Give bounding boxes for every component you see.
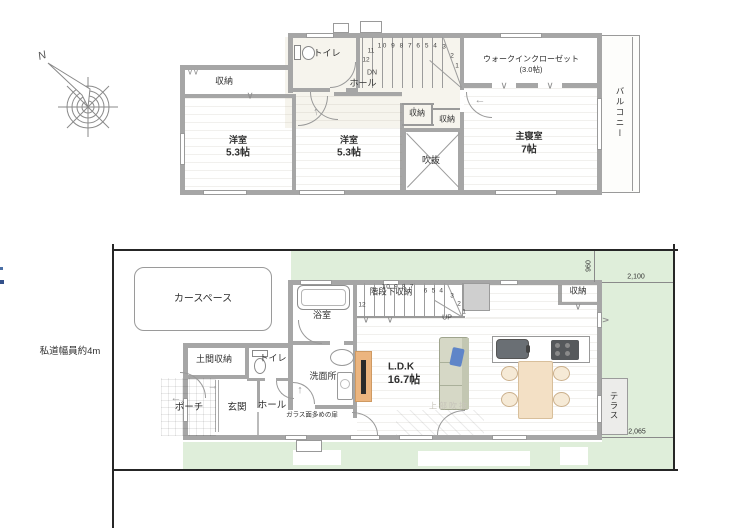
lot-boundary-right	[673, 244, 675, 471]
tv	[361, 360, 366, 394]
label-bedroom1: 洋室	[229, 136, 247, 146]
label-under-stair-storage: 階段下収納	[370, 287, 413, 296]
lot-boundary-bottom	[112, 469, 678, 471]
stairs-1f-3: 3	[450, 293, 454, 300]
lot-boundary-left	[112, 244, 114, 528]
label-ldk: L.D.K	[388, 362, 414, 373]
label-2f-hall: ホール	[349, 79, 376, 89]
label-bedroom1-size: 5.3帖	[226, 148, 250, 159]
stairs-1f-up: UP	[442, 315, 452, 322]
balcony-label: バルコニー	[614, 87, 626, 140]
label-void: 吹抜	[422, 156, 440, 166]
dim-960: 960	[586, 260, 593, 272]
stairs-2f-1: 1	[455, 63, 459, 70]
label-1f-storage: 収納	[569, 286, 586, 295]
label-wic-size: (3.0帖)	[520, 66, 543, 74]
stairs-1f-2: 2	[457, 301, 461, 308]
label-master: 主寝室	[515, 132, 542, 142]
dining-chair	[501, 392, 518, 407]
label-2f-storage-b: 収納	[439, 116, 455, 125]
washbasin	[330, 349, 354, 366]
label-bedroom2: 洋室	[340, 136, 358, 146]
label-porch: ポーチ	[175, 403, 204, 413]
label-bath: 浴室	[313, 311, 331, 321]
stairs-2f-run: 10 9 8 7 6 5 4	[378, 43, 439, 50]
compass-north-label: N	[37, 49, 48, 63]
kitchen-sink	[496, 339, 529, 359]
label-2f-storage-a: 収納	[409, 110, 425, 119]
compass-icon: N	[28, 33, 148, 148]
stairs-1f-1: 1	[462, 309, 466, 316]
cabinet	[463, 283, 490, 311]
dim-2100: 2,100	[627, 274, 645, 281]
label-1f-hall: ホール	[258, 401, 287, 411]
car-space-label: カースペース	[174, 294, 232, 305]
label-upper-void-note: 上部吹抜	[429, 403, 469, 412]
dining-chair	[501, 366, 518, 381]
dining-chair	[553, 392, 570, 407]
label-2f-toilet: トイレ	[313, 49, 340, 59]
kitchen-faucet	[526, 345, 530, 353]
toilet-fixture-2f	[294, 45, 301, 60]
label-wic: ウォークインクローゼット	[483, 56, 579, 65]
label-washroom: 洗面所	[309, 372, 336, 382]
stairs-2f-2: 2	[450, 53, 454, 60]
floor-plan-page: N バルコニー	[0, 0, 740, 530]
label-entrance: 玄関	[227, 403, 246, 413]
dining-table	[518, 361, 553, 419]
stairs-2f-dn: DN	[367, 70, 377, 77]
terrace-label: テラス	[608, 392, 620, 421]
dining-chair	[553, 366, 570, 381]
stairs-1f-12: 12	[358, 302, 365, 309]
label-doma-storage: 土間収納	[196, 355, 232, 365]
label-2f-storage: 収納	[215, 77, 233, 87]
label-master-size: 7帖	[521, 145, 537, 156]
stairs-2f-12: 12	[362, 57, 369, 64]
label-1f-toilet: トイレ	[259, 354, 286, 364]
stairs-1f-mid: 6 5 4	[424, 288, 444, 295]
road-width-label: 私道幅員約4m	[40, 347, 101, 357]
dim-2065: 2,065	[628, 429, 646, 436]
stairs-2f-3: 3	[442, 44, 446, 51]
stairs-2f-11: 11	[368, 48, 375, 55]
first-floor-plan: 私道幅員約4m 2,100 2,065 960 カースペース	[0, 230, 740, 530]
label-bedroom2-size: 5.3帖	[337, 148, 361, 159]
label-glass-door-note: ガラス面多めの扉	[286, 411, 338, 418]
label-ldk-size: 16.7帖	[388, 374, 420, 386]
